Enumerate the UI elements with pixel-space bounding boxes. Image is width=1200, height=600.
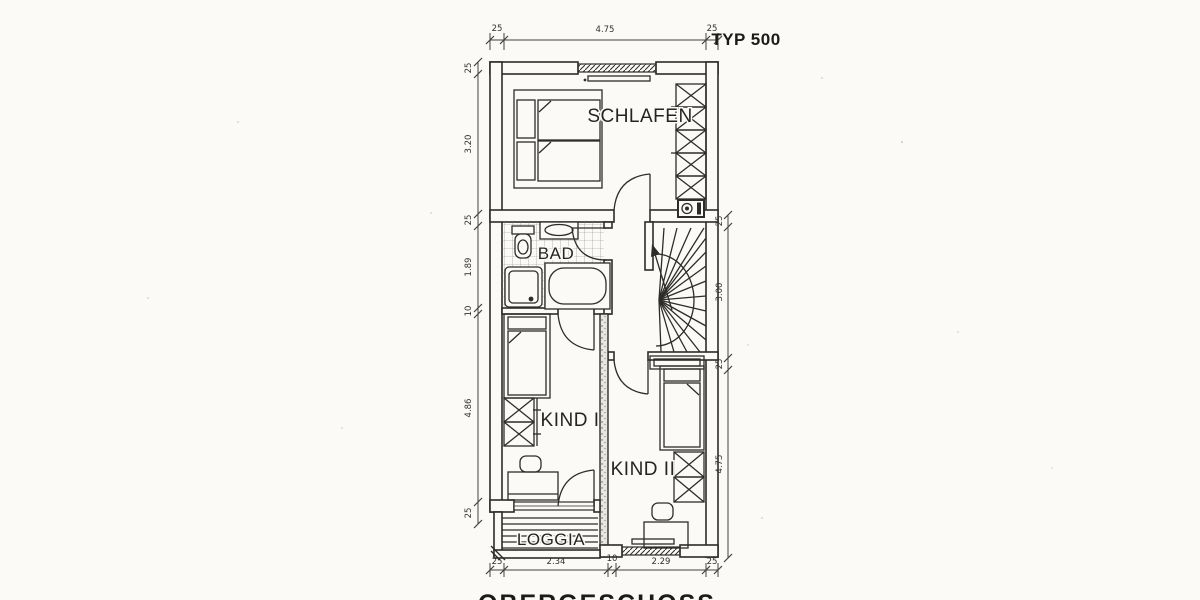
- double-bed-icon: [514, 90, 602, 188]
- dim-label: 4.86: [464, 399, 474, 418]
- stairs-icon: [651, 228, 706, 352]
- desk-icon-kind2: [644, 503, 688, 548]
- plan-caption: OBERGESCHOSS: [478, 590, 716, 600]
- dim-label: 25: [464, 215, 474, 226]
- bed-icon-kind2: [660, 366, 704, 450]
- dim-label: 3.20: [464, 135, 474, 154]
- wardrobe-icon-schlafen: [671, 84, 706, 199]
- dimension-chain-top: 25 4.75 25: [486, 24, 722, 50]
- dim-label: 2.34: [547, 557, 566, 567]
- shower-icon: [505, 267, 542, 307]
- bed-icon-kind1: [504, 314, 550, 398]
- chair-icon-kind2: [652, 503, 673, 520]
- dim-label: 1.89: [464, 258, 474, 277]
- dim-label: 25: [492, 24, 503, 34]
- dim-label: 25: [715, 359, 725, 370]
- desk-icon-kind1: [508, 456, 558, 500]
- dim-label: 25: [464, 508, 474, 519]
- door-arc-schlafen: [614, 174, 650, 210]
- room-label-loggia: LOGGIA: [517, 530, 585, 549]
- dim-label: 10: [607, 554, 618, 564]
- plan-title: TYP 500: [711, 30, 780, 49]
- floor-plan-drawing: SCHLAFEN BAD KIND I KIND II LOGGIA 25 4.…: [0, 0, 1200, 600]
- dim-label: 4.75: [715, 455, 725, 474]
- dim-label: 4.75: [596, 25, 615, 35]
- wardrobe-icon-kind1: [504, 398, 541, 446]
- wardrobe-icon-kind2: [674, 452, 704, 502]
- window-symbol-kind2: [622, 539, 680, 555]
- window-symbol-loggia-door: [514, 502, 594, 510]
- toilet-icon: [512, 226, 534, 258]
- stairs-up-arrow: [651, 244, 660, 257]
- window-symbol-schlafen: [578, 64, 656, 81]
- dim-label: 2.29: [652, 557, 671, 567]
- door-arc-kind1: [558, 314, 594, 350]
- dimension-chain-left: 25 3.20 25 1.89 10 4.86 25: [464, 58, 482, 528]
- door-arc-kind2: [614, 360, 648, 394]
- room-label-schlafen: SCHLAFEN: [587, 106, 692, 127]
- bathtub-icon: [545, 263, 610, 309]
- dim-label: 25: [492, 557, 503, 567]
- door-arc-loggia: [558, 470, 594, 506]
- dim-label: 25: [715, 216, 725, 227]
- chair-icon-kind1: [520, 456, 541, 472]
- scanned-floor-plan-page: { "title": "TYP 500", "caption": "OBERGE…: [0, 0, 1200, 600]
- dim-label: 25: [707, 557, 718, 567]
- washing-machine-icon: [678, 200, 704, 217]
- divider-wall: [600, 314, 608, 557]
- room-label-bad: BAD: [538, 244, 574, 263]
- dim-label: 25: [464, 63, 474, 74]
- dim-label: 10: [464, 306, 474, 317]
- dim-label: 3.00: [715, 283, 725, 302]
- bathroom: [502, 222, 610, 309]
- room-label-kind2: KIND II: [611, 459, 676, 480]
- room-label-kind1: KIND I: [541, 410, 600, 431]
